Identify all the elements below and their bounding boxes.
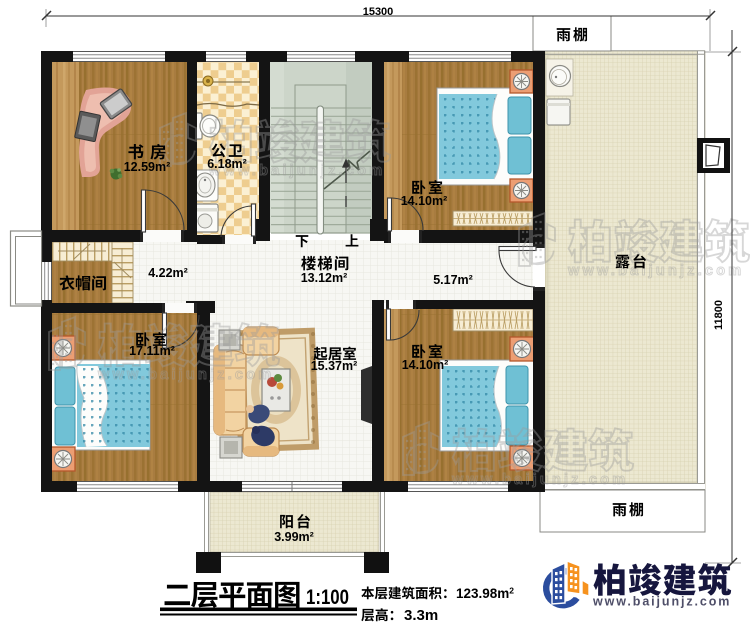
svg-text:6.18m²: 6.18m² [207, 157, 247, 171]
svg-text:4.22m²: 4.22m² [148, 266, 188, 280]
svg-text:123.98m2: 123.98m2 [456, 586, 514, 602]
svg-text:3.99m²: 3.99m² [274, 530, 314, 544]
svg-text:www.baijunjz.com: www.baijunjz.com [592, 595, 731, 609]
svg-text:11800: 11800 [713, 300, 725, 330]
svg-text:1:100: 1:100 [306, 586, 349, 609]
svg-text:12.59m²: 12.59m² [124, 160, 171, 174]
svg-text:3.3m: 3.3m [404, 607, 438, 624]
svg-text:14.10m²: 14.10m² [402, 358, 449, 372]
svg-text:15300: 15300 [363, 6, 394, 18]
svg-text:www.baijunjz.com: www.baijunjz.com [567, 263, 744, 279]
svg-text:15.37m²: 15.37m² [311, 359, 358, 373]
svg-text:17.11m²: 17.11m² [129, 344, 175, 358]
svg-text:5.17m²: 5.17m² [433, 273, 473, 287]
svg-text:13.12m²: 13.12m² [301, 271, 348, 285]
svg-text:www.baijunjz.com: www.baijunjz.com [97, 367, 274, 383]
svg-text:14.10m²: 14.10m² [401, 194, 448, 208]
svg-text:www.baijunjz.com: www.baijunjz.com [451, 472, 628, 488]
